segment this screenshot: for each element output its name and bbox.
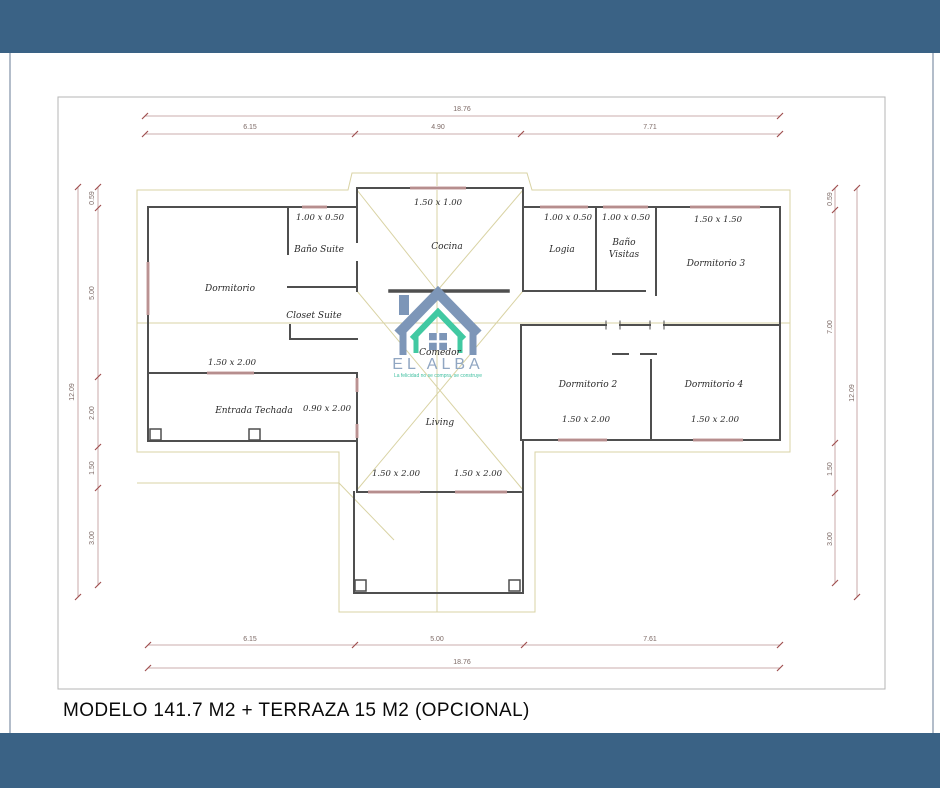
dimension-7-00: 7.00 xyxy=(827,320,834,334)
room-label-logia: Logia xyxy=(548,245,574,255)
window-dim-1-00-x-0-50: 1.00 x 0.50 xyxy=(544,213,593,223)
terrace-walls xyxy=(354,492,523,593)
logo-tagline-text: La felicidad no se compra, se construye xyxy=(394,373,482,379)
room-label-dormitorio-3: Dormitorio 3 xyxy=(686,259,746,269)
dimension-0-59: 0.59 xyxy=(827,192,834,206)
window-dim-1-00-x-0-50: 1.00 x 0.50 xyxy=(602,213,651,223)
room-label-entrada-techada: Entrada Techada xyxy=(214,406,293,416)
dimension-18-76: 18.76 xyxy=(453,106,471,113)
dimension-2-00: 2.00 xyxy=(89,406,96,420)
dimension-0-59: 0.59 xyxy=(89,191,96,205)
room-label-visitas: Visitas xyxy=(609,250,640,260)
walls xyxy=(148,188,780,593)
window-dim-1-50-x-2-00: 1.50 x 2.00 xyxy=(562,415,611,425)
logo-name-text: EL ALBA xyxy=(392,356,483,373)
dimension-3-00: 3.00 xyxy=(89,531,96,545)
dimension-6-15: 6.15 xyxy=(243,636,257,643)
entry-pillar xyxy=(249,429,260,440)
room-label-comedor: Comedor xyxy=(419,348,461,358)
dimension-7-61: 7.61 xyxy=(643,636,657,643)
dimension-1-50: 1.50 xyxy=(89,461,96,475)
window-dim-0-90-x-2-00: 0.90 x 2.00 xyxy=(303,404,352,414)
window-dim-1-50-x-2-00: 1.50 x 2.00 xyxy=(454,469,503,479)
dimension-3-00: 3.00 xyxy=(827,532,834,546)
room-label-cocina: Cocina xyxy=(431,242,462,252)
window-dim-1-00-x-0-50: 1.00 x 0.50 xyxy=(296,213,345,223)
dimension-1-50: 1.50 xyxy=(827,462,834,476)
dimension-12-09: 12.09 xyxy=(69,383,76,401)
dimension-12-09: 12.09 xyxy=(849,384,856,402)
window-dim-1-50-x-2-00: 1.50 x 2.00 xyxy=(372,469,421,479)
room-label-living: Living xyxy=(425,418,455,428)
room-label-dormitorio: Dormitorio xyxy=(204,284,256,294)
slide-title: MODELO 141.7 M2 + TERRAZA 15 M2 (OPCIONA… xyxy=(63,700,530,722)
dimension-lines xyxy=(75,113,860,671)
dimension-18-76: 18.76 xyxy=(453,659,471,666)
dimension-4-90: 4.90 xyxy=(431,124,445,131)
windows xyxy=(148,188,760,492)
roof-lines xyxy=(137,173,790,612)
dimension-6-15: 6.15 xyxy=(243,124,257,131)
room-label-closet-suite: Closet Suite xyxy=(286,311,341,321)
dimension-5-00: 5.00 xyxy=(89,286,96,300)
room-label-bano: Baño xyxy=(611,238,636,248)
dimension-7-71: 7.71 xyxy=(643,124,657,131)
floor-plan-drawing: EL ALBA La felicidad no se compra, se co… xyxy=(0,0,940,788)
room-label-dormitorio-4: Dormitorio 4 xyxy=(684,380,744,390)
logo: EL ALBA La felicidad no se compra, se co… xyxy=(392,293,483,379)
entry-pillar xyxy=(150,429,161,440)
dimension-ticks xyxy=(75,113,860,671)
terrace-pillar xyxy=(355,580,366,591)
terrace-pillar xyxy=(509,580,520,591)
dimension-5-00: 5.00 xyxy=(430,636,444,643)
room-label-dormitorio-2: Dormitorio 2 xyxy=(558,380,618,390)
window-dim-1-50-x-1-50: 1.50 x 1.50 xyxy=(694,215,743,225)
window-dim-1-50-x-2-00: 1.50 x 2.00 xyxy=(208,358,257,368)
drawing-frame xyxy=(58,97,885,689)
room-label-bano-suite: Baño Suite xyxy=(293,245,344,255)
pillars xyxy=(150,429,520,591)
window-dim-1-50-x-2-00: 1.50 x 2.00 xyxy=(691,415,740,425)
logo-chimney xyxy=(399,295,409,315)
window-dim-1-50-x-1-00: 1.50 x 1.00 xyxy=(414,198,463,208)
